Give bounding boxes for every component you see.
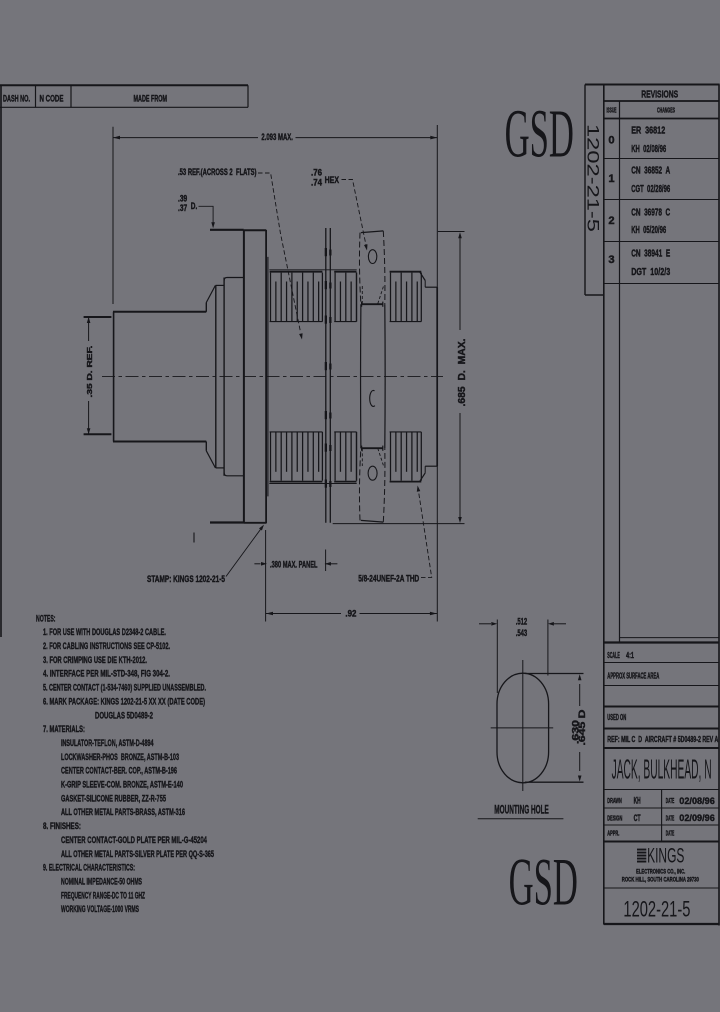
svg-text:.512: .512 bbox=[516, 617, 528, 627]
svg-text:INSULATOR-TEFLON, ASTM-D-4894: INSULATOR-TEFLON, ASTM-D-4894 bbox=[61, 738, 154, 749]
svg-text:CN 36852 A: CN 36852 A bbox=[631, 166, 670, 177]
svg-text:DGT 10/2/3: DGT 10/2/3 bbox=[631, 267, 670, 278]
svg-text:KH 05/20/96: KH 05/20/96 bbox=[631, 225, 666, 236]
svg-text:KINGS: KINGS bbox=[647, 845, 684, 868]
svg-text:WORKING VOLTAGE-1000 VRMS: WORKING VOLTAGE-1000 VRMS bbox=[61, 904, 139, 915]
svg-text:NOMINAL IMPEDANCE-50 OHMS: NOMINAL IMPEDANCE-50 OHMS bbox=[61, 877, 142, 888]
svg-text:CT: CT bbox=[634, 813, 641, 823]
svg-text:DATE: DATE bbox=[666, 829, 675, 838]
svg-text:DATE: DATE bbox=[666, 796, 675, 805]
svg-text:ER 36812: ER 36812 bbox=[631, 126, 665, 137]
svg-text:3. FOR CRIMPING USE DIE KTH-20: 3. FOR CRIMPING USE DIE KTH-2012. bbox=[43, 655, 147, 666]
svg-text:.543: .543 bbox=[516, 628, 528, 638]
svg-text:KH: KH bbox=[634, 796, 641, 806]
svg-text:.76: .76 bbox=[311, 168, 322, 178]
svg-text:ALL OTHER METAL PARTS-BRASS, A: ALL OTHER METAL PARTS-BRASS, ASTM-316 bbox=[61, 807, 185, 818]
svg-text:5/8-24UNEF-2A THD: 5/8-24UNEF-2A THD bbox=[358, 573, 419, 583]
svg-text:6. MARK PACKAGE: KINGS 1202-21: 6. MARK PACKAGE: KINGS 1202-21-5 XX XX (… bbox=[43, 696, 205, 707]
svg-text:CENTER CONTACT-GOLD PLATE PER: CENTER CONTACT-GOLD PLATE PER MIL-G-4520… bbox=[61, 835, 207, 846]
svg-text:USED ON: USED ON bbox=[607, 713, 626, 722]
svg-text:1202-21-5: 1202-21-5 bbox=[584, 124, 603, 232]
svg-text:ISSUE: ISSUE bbox=[607, 107, 617, 114]
svg-text:CENTER CONTACT-BER. COP., ASTM: CENTER CONTACT-BER. COP., ASTM-B-196 bbox=[61, 766, 177, 777]
svg-text:STAMP: KINGS 1202-21-5: STAMP: KINGS 1202-21-5 bbox=[147, 574, 225, 584]
svg-text:GSD: GSD bbox=[509, 844, 578, 920]
svg-text:REVISIONS: REVISIONS bbox=[641, 88, 678, 100]
svg-text:3: 3 bbox=[608, 254, 614, 266]
svg-text:4. INTERFACE PER MIL-STD-348,: 4. INTERFACE PER MIL-STD-348, FIG 304-2. bbox=[43, 669, 170, 680]
svg-text:.53 REF.(ACROSS 2 FLATS): .53 REF.(ACROSS 2 FLATS) bbox=[178, 167, 257, 177]
svg-text:DASH NO.: DASH NO. bbox=[3, 93, 30, 103]
svg-text:CGT 02/28/96: CGT 02/28/96 bbox=[631, 184, 670, 195]
svg-text:MOUNTING HOLE: MOUNTING HOLE bbox=[494, 802, 549, 816]
svg-text:REF: MIL C D AIRCRAFT # 5D04: REF: MIL C D AIRCRAFT # 5D0489-2 REV A bbox=[607, 734, 718, 744]
svg-text:.37: .37 bbox=[178, 203, 187, 213]
svg-text:.685 D. MAX.: .685 D. MAX. bbox=[456, 338, 468, 406]
svg-text:.380 MAX. PANEL: .380 MAX. PANEL bbox=[270, 559, 318, 569]
svg-text:GASKET-SILICONE RUBBER, ZZ-R-7: GASKET-SILICONE RUBBER, ZZ-R-755 bbox=[61, 793, 166, 804]
svg-text:CN 36978 C: CN 36978 C bbox=[631, 208, 670, 219]
svg-text:2.093 MAX.: 2.093 MAX. bbox=[261, 132, 293, 142]
svg-text:MADE FROM: MADE FROM bbox=[134, 93, 168, 103]
svg-text:GSD: GSD bbox=[505, 96, 574, 172]
svg-text:K-GRIP SLEEVE-COM. BRONZE, AST: K-GRIP SLEEVE-COM. BRONZE, ASTM-E-140 bbox=[61, 780, 183, 791]
svg-text:.630: .630 bbox=[571, 720, 581, 744]
svg-text:APPR.: APPR. bbox=[607, 829, 619, 838]
svg-text:NOTES:: NOTES: bbox=[36, 613, 56, 624]
svg-text:02/08/96: 02/08/96 bbox=[679, 796, 715, 807]
svg-text:D.: D. bbox=[191, 201, 198, 211]
svg-text:DRAWN: DRAWN bbox=[607, 796, 622, 805]
svg-text:ROCK HILL, SOUTH CAROLINA 2973: ROCK HILL, SOUTH CAROLINA 29730 bbox=[622, 876, 699, 883]
svg-text:DOUGLAS 5D0489-2: DOUGLAS 5D0489-2 bbox=[95, 710, 153, 721]
svg-text:CHANGES: CHANGES bbox=[657, 107, 675, 114]
svg-text:02/09/96: 02/09/96 bbox=[679, 813, 715, 824]
svg-text:LOCKWASHER-PHOS BRONZE, ASTM-: LOCKWASHER-PHOS BRONZE, ASTM-B-103 bbox=[61, 752, 179, 763]
svg-text:APPROX SURFACE AREA: APPROX SURFACE AREA bbox=[607, 672, 659, 681]
svg-text:HEX: HEX bbox=[325, 175, 340, 185]
svg-text:KH 02/08/96: KH 02/08/96 bbox=[631, 144, 666, 155]
svg-text:DATE: DATE bbox=[666, 814, 675, 823]
svg-text:ALL OTHER METAL PARTS-SILVER P: ALL OTHER METAL PARTS-SILVER PLATE PER Q… bbox=[61, 849, 214, 860]
svg-text:SCALE: SCALE bbox=[607, 651, 620, 660]
svg-text:2. FOR CABLING INSTRUCTIONS SE: 2. FOR CABLING INSTRUCTIONS SEE CP-5102. bbox=[43, 641, 170, 652]
svg-text:5. CENTER CONTACT (1-534-7460): 5. CENTER CONTACT (1-534-7460) SUPPLIED … bbox=[43, 683, 206, 694]
svg-text:FREQUENCY RANGE-DC TO 11 GHZ: FREQUENCY RANGE-DC TO 11 GHZ bbox=[61, 890, 145, 901]
svg-text:DESIGN: DESIGN bbox=[607, 814, 622, 823]
svg-text:JACK, BULKHEAD, N: JACK, BULKHEAD, N bbox=[612, 753, 712, 784]
svg-text:1. FOR USE WITH DOUGLAS D2348-: 1. FOR USE WITH DOUGLAS D2348-2 CABLE. bbox=[43, 627, 166, 638]
svg-text:CN 38941 E: CN 38941 E bbox=[631, 249, 670, 260]
svg-text:8. FINISHES:: 8. FINISHES: bbox=[43, 821, 81, 832]
svg-text:1202-21-5: 1202-21-5 bbox=[623, 897, 690, 922]
svg-text:N CODE: N CODE bbox=[40, 93, 64, 103]
svg-text:9. ELECTRICAL CHARACTERISTICS:: 9. ELECTRICAL CHARACTERISTICS: bbox=[43, 863, 135, 874]
svg-text:0: 0 bbox=[608, 134, 614, 146]
svg-text:ELECTRONICS CO., INC.: ELECTRONICS CO., INC. bbox=[636, 869, 685, 876]
svg-text:.92: .92 bbox=[345, 609, 356, 619]
svg-text:2: 2 bbox=[608, 215, 614, 227]
svg-text:.74: .74 bbox=[311, 177, 322, 187]
svg-text:4:1: 4:1 bbox=[626, 650, 634, 660]
svg-text:1: 1 bbox=[608, 173, 614, 185]
svg-text:.35 D. REF.: .35 D. REF. bbox=[85, 346, 94, 398]
svg-text:7. MATERIALS:: 7. MATERIALS: bbox=[43, 724, 85, 735]
